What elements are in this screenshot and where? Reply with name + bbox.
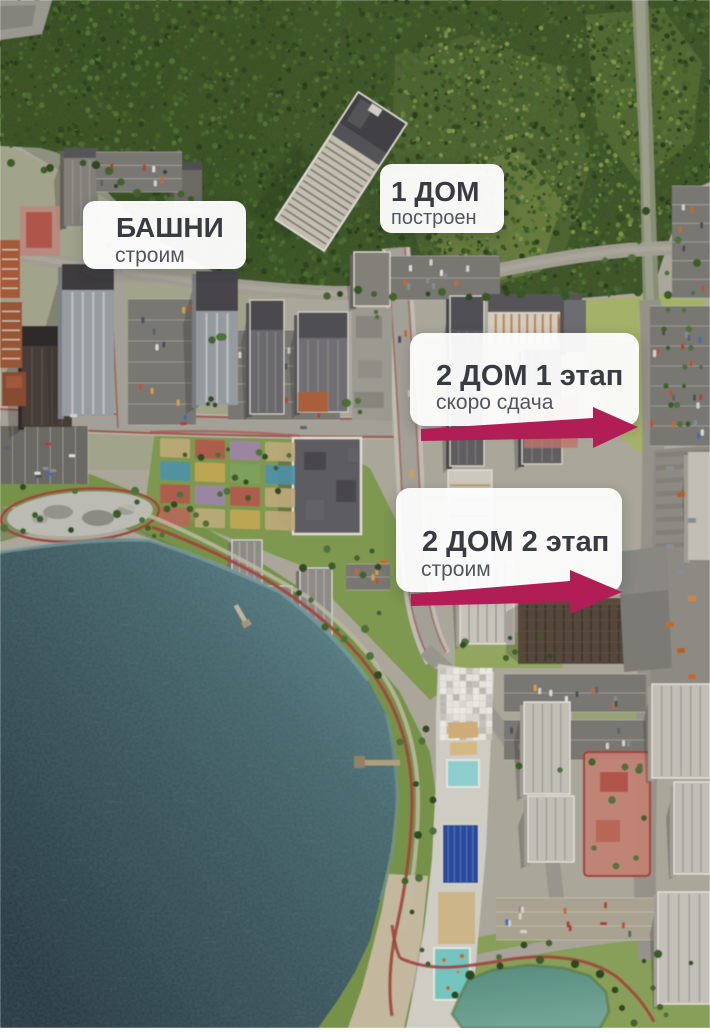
svg-text:строим: строим [115,244,185,267]
svg-text:БАШНИ: БАШНИ [116,212,224,243]
svg-text:2 ДОМ 2 этап: 2 ДОМ 2 этап [422,526,609,558]
svg-text:построен: построен [391,207,477,229]
svg-text:строим: строим [421,558,491,581]
svg-text:2 ДОМ 1 этап: 2 ДОМ 1 этап [436,360,623,392]
svg-text:1 ДОМ: 1 ДОМ [391,176,479,207]
svg-text:скоро сдача: скоро сдача [436,391,554,414]
